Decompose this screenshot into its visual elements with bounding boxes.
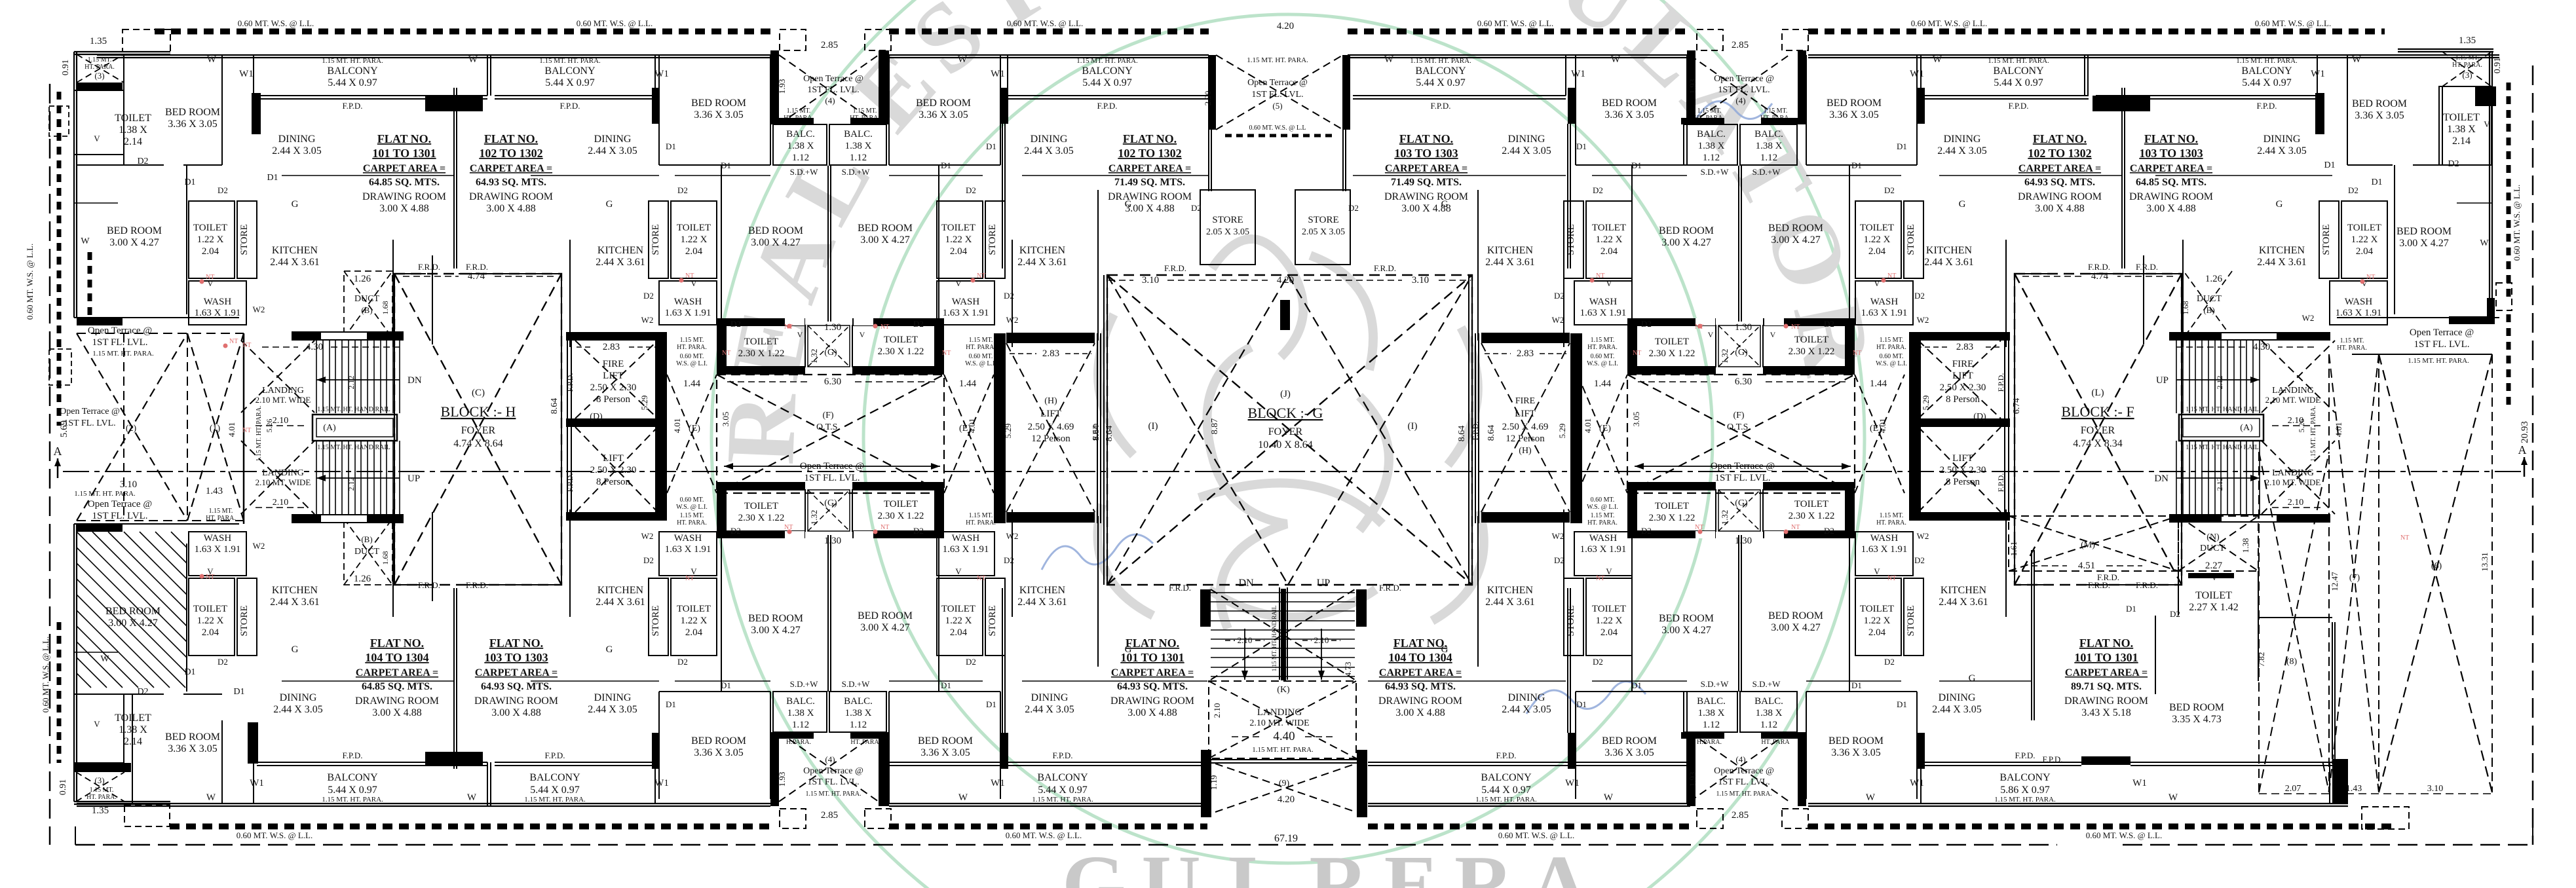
svg-text:10.40 X 8.64: 10.40 X 8.64 — [1258, 439, 1313, 451]
svg-text:DUCT: DUCT — [354, 294, 380, 304]
svg-text:D2: D2 — [966, 185, 976, 195]
svg-text:TOILET: TOILET — [2443, 112, 2480, 123]
svg-text:NT: NT — [1633, 350, 1641, 357]
svg-text:LANDING: LANDING — [262, 386, 304, 396]
svg-text:3.00 X 4.27: 3.00 X 4.27 — [860, 234, 910, 246]
svg-text:V: V — [94, 719, 100, 729]
svg-text:1.93: 1.93 — [1688, 772, 1697, 787]
svg-text:2.10 MT. WIDE: 2.10 MT. WIDE — [2265, 477, 2321, 487]
svg-text:FLAT NO.: FLAT NO. — [2144, 132, 2198, 145]
svg-text:WASH: WASH — [2345, 297, 2373, 307]
svg-text:2.44 X 3.61: 2.44 X 3.61 — [270, 257, 320, 268]
svg-text:2.44 X 3.61: 2.44 X 3.61 — [270, 597, 320, 608]
svg-text:NT: NT — [1853, 350, 1861, 357]
svg-text:2.30 X 1.22: 2.30 X 1.22 — [1789, 511, 1835, 521]
svg-text:TOILET: TOILET — [677, 604, 711, 614]
svg-text:STORE: STORE — [1906, 224, 1916, 255]
svg-text:D2: D2 — [1004, 555, 1014, 565]
svg-text:(D): (D) — [1973, 412, 1986, 422]
svg-text:0.60 MT.: 0.60 MT. — [1591, 353, 1615, 360]
svg-text:3.00 X 4.88: 3.00 X 4.88 — [2146, 203, 2196, 214]
svg-text:W.S. @ L.I.: W.S. @ L.I. — [1876, 360, 1907, 367]
svg-text:1.12: 1.12 — [850, 720, 867, 730]
svg-text:2.14: 2.14 — [124, 136, 142, 147]
svg-text:BALC.: BALC. — [786, 129, 815, 139]
svg-text:NT: NT — [942, 350, 951, 357]
svg-text:2.44 X 3.05: 2.44 X 3.05 — [1025, 704, 1074, 715]
svg-text:NT: NT — [1791, 324, 1800, 331]
svg-text:FLAT NO.: FLAT NO. — [1393, 637, 1447, 650]
svg-text:NT: NT — [1887, 575, 1896, 582]
svg-text:5.44 X 0.97: 5.44 X 0.97 — [545, 77, 595, 88]
svg-text:0.60 MT.: 0.60 MT. — [969, 353, 993, 360]
svg-text:HT. PARA.: HT. PARA. — [677, 519, 707, 527]
svg-text:2.05 X 3.05: 2.05 X 3.05 — [1206, 227, 1249, 237]
svg-text:D1: D1 — [986, 141, 996, 151]
svg-text:NT: NT — [242, 427, 251, 434]
svg-text:2.10: 2.10 — [2288, 498, 2304, 508]
svg-text:D2: D2 — [643, 291, 654, 301]
svg-text:LIFT: LIFT — [1515, 409, 1536, 419]
svg-text:2.85: 2.85 — [821, 810, 838, 821]
svg-text:2.30 X 1.22: 2.30 X 1.22 — [1649, 348, 1695, 359]
svg-text:(B): (B) — [361, 534, 372, 544]
svg-text:2.04: 2.04 — [1868, 627, 1886, 638]
svg-text:DUCT: DUCT — [2197, 294, 2222, 304]
svg-text:2.30 X 1.22: 2.30 X 1.22 — [878, 346, 924, 357]
svg-text:1.15 MT. HT. PARA.: 1.15 MT. HT. PARA. — [2236, 57, 2298, 65]
svg-text:8 Person: 8 Person — [596, 477, 631, 487]
svg-text:1.15 MT. HT. HAND RAIL: 1.15 MT. HT. HAND RAIL — [317, 444, 390, 451]
svg-text:D2: D2 — [1593, 185, 1603, 195]
svg-text:1.30: 1.30 — [824, 536, 841, 546]
svg-text:W.S. @ L.I.: W.S. @ L.I. — [1587, 360, 1618, 367]
svg-text:2.44 X 3.61: 2.44 X 3.61 — [1017, 257, 1067, 268]
svg-text:8.64: 8.64 — [1105, 426, 1114, 442]
svg-text:2.05 X 3.05: 2.05 X 3.05 — [1302, 227, 1345, 237]
svg-text:4.74: 4.74 — [2091, 271, 2109, 282]
svg-text:(G): (G) — [824, 348, 837, 358]
svg-text:W: W — [206, 792, 216, 803]
svg-text:V: V — [860, 330, 865, 339]
svg-text:S.D.+W: S.D.+W — [842, 167, 870, 177]
svg-text:GUJ RERA: GUJ RERA — [1062, 840, 1604, 888]
svg-text:0.60 MT. W.S. @ L.L.: 0.60 MT. W.S. @ L.L. — [1911, 18, 1987, 28]
svg-text:(4): (4) — [825, 754, 835, 764]
svg-text:1.12: 1.12 — [1703, 153, 1720, 163]
svg-text:H.PARA.: H.PARA. — [1697, 739, 1722, 746]
svg-text:(4): (4) — [825, 96, 835, 105]
svg-text:2.12: 2.12 — [2215, 376, 2224, 390]
svg-text:2.50 X 4.69: 2.50 X 4.69 — [1028, 422, 1074, 432]
svg-text:G: G — [1441, 199, 1449, 210]
svg-text:WASH: WASH — [952, 297, 980, 307]
svg-text:(5): (5) — [1272, 101, 1282, 111]
svg-text:D1: D1 — [267, 173, 278, 183]
svg-text:(F): (F) — [822, 411, 833, 420]
svg-text:NT: NT — [206, 574, 214, 581]
svg-text:2.44 X 3.61: 2.44 X 3.61 — [1924, 257, 1974, 268]
svg-text:W1: W1 — [654, 778, 669, 788]
svg-text:W: W — [100, 654, 109, 664]
svg-text:1.22 X: 1.22 X — [945, 616, 972, 626]
svg-text:1.63 X 1.91: 1.63 X 1.91 — [1861, 544, 1908, 555]
svg-text:WASH: WASH — [1870, 297, 1899, 307]
svg-text:1ST FL. LVL.: 1ST FL. LVL. — [1251, 90, 1303, 100]
svg-text:BED ROOM: BED ROOM — [2352, 98, 2407, 109]
svg-text:DINING: DINING — [1944, 134, 1981, 145]
svg-text:CARPET AREA =: CARPET AREA = — [1385, 163, 1468, 174]
svg-text:(J): (J) — [1280, 389, 1291, 399]
svg-text:2.10: 2.10 — [273, 416, 289, 426]
svg-text:FOYER: FOYER — [2081, 425, 2115, 436]
svg-text:1.26: 1.26 — [2205, 274, 2223, 284]
svg-text:D1: D1 — [1576, 141, 1587, 151]
svg-text:W2: W2 — [1917, 531, 1929, 541]
svg-text:(6): (6) — [2431, 561, 2442, 571]
svg-text:1.35: 1.35 — [92, 805, 109, 816]
svg-text:0.60 MT. W.S. @ L.L.: 0.60 MT. W.S. @ L.L. — [238, 18, 314, 28]
svg-text:A: A — [2518, 443, 2527, 456]
svg-text:HT. PARA.: HT. PARA. — [966, 344, 996, 351]
svg-text:DINING: DINING — [1031, 134, 1068, 145]
svg-text:3.36 X 3.05: 3.36 X 3.05 — [694, 747, 744, 758]
svg-text:2.44 X 3.05: 2.44 X 3.05 — [2257, 145, 2307, 157]
svg-text:6.74: 6.74 — [2012, 398, 2022, 415]
svg-text:D2: D2 — [2170, 609, 2180, 619]
svg-text:S.D.+W: S.D.+W — [1701, 167, 1729, 177]
svg-text:BALC.: BALC. — [1697, 696, 1726, 707]
svg-text:BED ROOM: BED ROOM — [1768, 223, 1823, 234]
svg-text:BED ROOM: BED ROOM — [107, 225, 162, 236]
svg-text:TOILET: TOILET — [744, 337, 778, 347]
svg-text:3.00 X 4.88: 3.00 X 4.88 — [379, 203, 429, 214]
svg-text:D2: D2 — [1191, 203, 1202, 213]
svg-text:64.93 SQ. MTS.: 64.93 SQ. MTS. — [2024, 177, 2095, 188]
svg-text:2.27 X 1.42: 2.27 X 1.42 — [2189, 602, 2239, 613]
svg-text:1.35: 1.35 — [2459, 35, 2476, 46]
svg-text:W2: W2 — [1917, 315, 1929, 325]
svg-text:BALC.: BALC. — [844, 129, 873, 139]
svg-text:D2: D2 — [1004, 291, 1014, 301]
svg-text:DN: DN — [2154, 473, 2169, 484]
svg-text:KITCHEN: KITCHEN — [1487, 245, 1534, 256]
svg-text:W1: W1 — [1565, 778, 1580, 788]
svg-text:BLOCK :- H: BLOCK :- H — [441, 403, 516, 420]
svg-text:D2: D2 — [643, 555, 654, 565]
svg-text:2.10 MT. WIDE: 2.10 MT. WIDE — [256, 477, 311, 487]
svg-text:KITCHEN: KITCHEN — [597, 585, 644, 596]
svg-text:DUCT: DUCT — [354, 547, 380, 557]
svg-text:2.44 X 3.61: 2.44 X 3.61 — [1017, 597, 1067, 608]
svg-text:W: W — [1933, 54, 1942, 65]
svg-text:1.12: 1.12 — [1703, 720, 1720, 730]
svg-text:8 Person: 8 Person — [596, 394, 631, 405]
svg-text:0.60 MT. W.S. @ L.L.: 0.60 MT. W.S. @ L.L. — [25, 244, 35, 320]
svg-text:KITCHEN: KITCHEN — [272, 245, 318, 256]
svg-text:2.83: 2.83 — [1956, 342, 1973, 352]
svg-text:3.05: 3.05 — [1631, 412, 1641, 427]
svg-text:1.22 X: 1.22 X — [197, 234, 224, 245]
svg-text:F.P.D.: F.P.D. — [2008, 101, 2028, 111]
svg-text:DN: DN — [407, 375, 422, 386]
svg-text:12 Person: 12 Person — [1031, 434, 1070, 444]
svg-text:V: V — [797, 330, 803, 339]
svg-text:3.00 X 4.27: 3.00 X 4.27 — [751, 237, 801, 248]
svg-text:D2: D2 — [913, 319, 924, 329]
svg-text:Open Terrace @: Open Terrace @ — [2410, 327, 2474, 338]
svg-text:1.15 MT.: 1.15 MT. — [680, 337, 704, 344]
svg-text:20.93: 20.93 — [2520, 421, 2530, 443]
svg-text:W: W — [1611, 54, 1621, 65]
svg-text:W: W — [81, 236, 90, 246]
svg-text:D2: D2 — [1554, 291, 1564, 301]
svg-text:D2: D2 — [966, 657, 976, 667]
svg-text:V: V — [1874, 566, 1880, 576]
svg-text:1.12: 1.12 — [1760, 720, 1777, 730]
svg-text:DINING: DINING — [594, 692, 632, 703]
svg-text:1.15 MT.: 1.15 MT. — [88, 56, 112, 64]
svg-text:W: W — [1384, 54, 1394, 65]
svg-text:1.15 MT. HT. PARA.: 1.15 MT. HT. PARA. — [539, 57, 601, 65]
svg-text:1ST FL. LVL.: 1ST FL. LVL. — [2414, 339, 2469, 350]
svg-text:2.04: 2.04 — [950, 627, 968, 638]
svg-text:5.29: 5.29 — [1003, 424, 1013, 439]
svg-text:67.19: 67.19 — [1274, 833, 1298, 844]
svg-text:D1: D1 — [1576, 699, 1587, 709]
svg-text:1.15 MT. HT. PARA.: 1.15 MT. HT. PARA. — [322, 57, 383, 65]
svg-text:BALCONY: BALCONY — [1481, 772, 1532, 783]
svg-text:3.00 X 4.88: 3.00 X 4.88 — [1127, 707, 1177, 718]
svg-text:2.10 MT. WIDE: 2.10 MT. WIDE — [2265, 395, 2321, 405]
svg-text:1.15 MT. HT. HAND RAIL: 1.15 MT. HT. HAND RAIL — [2186, 444, 2259, 451]
svg-text:2.12: 2.12 — [2215, 477, 2224, 491]
svg-text:KITCHEN: KITCHEN — [1487, 585, 1534, 596]
svg-text:BALCONY: BALCONY — [1037, 772, 1088, 783]
svg-text:FIRE: FIRE — [1952, 359, 1974, 369]
svg-text:D1: D1 — [2371, 177, 2382, 187]
svg-text:1.15 MT.: 1.15 MT. — [853, 107, 877, 115]
svg-text:0.60 MT.: 0.60 MT. — [680, 496, 704, 504]
svg-text:102 TO 1302: 102 TO 1302 — [2028, 147, 2091, 160]
svg-text:4.74 X 8.34: 4.74 X 8.34 — [2073, 438, 2123, 449]
svg-text:(7): (7) — [2349, 573, 2360, 583]
svg-text:HT. PARA.: HT. PARA. — [86, 794, 117, 801]
svg-text:(H): (H) — [1519, 446, 1532, 456]
svg-text:TOILET: TOILET — [193, 223, 227, 233]
svg-text:2.44 X 3.61: 2.44 X 3.61 — [1939, 597, 1988, 608]
svg-text:1ST FL. LVL.: 1ST FL. LVL. — [92, 511, 147, 521]
svg-text:12 Person: 12 Person — [1506, 434, 1545, 444]
svg-text:WASH: WASH — [204, 533, 232, 544]
svg-text:Open Terrace @: Open Terrace @ — [803, 766, 863, 776]
svg-text:1ST FL. LVL.: 1ST FL. LVL. — [92, 337, 147, 348]
svg-text:W: W — [2352, 54, 2362, 65]
svg-text:5.44 X 0.97: 5.44 X 0.97 — [1038, 785, 1088, 796]
svg-text:W2: W2 — [1552, 531, 1564, 541]
svg-text:3.05: 3.05 — [721, 412, 730, 427]
svg-text:BALCONY: BALCONY — [1993, 65, 2044, 77]
svg-text:1.15 MT. HT. PARA.: 1.15 MT. HT. PARA. — [1076, 57, 1138, 65]
svg-text:S.D.+W: S.D.+W — [842, 679, 870, 689]
svg-text:2.50 X 2.30: 2.50 X 2.30 — [590, 382, 637, 393]
svg-text:D2: D2 — [677, 657, 688, 667]
svg-text:TOILET: TOILET — [1860, 223, 1894, 233]
svg-text:1.44: 1.44 — [683, 379, 701, 389]
svg-text:W: W — [958, 54, 968, 65]
svg-text:(1): (1) — [210, 424, 221, 434]
svg-text:HT. PARA.: HT. PARA. — [1587, 344, 1618, 351]
svg-text:1.15 MT.: 1.15 MT. — [2340, 337, 2364, 344]
svg-text:1.22 X: 1.22 X — [681, 616, 708, 626]
svg-text:1.61: 1.61 — [2009, 542, 2018, 557]
svg-text:NT: NT — [242, 342, 251, 349]
svg-text:3.36 X 3.05: 3.36 X 3.05 — [1829, 109, 1879, 120]
svg-text:BLOCK :- G: BLOCK :- G — [1248, 405, 1323, 421]
svg-text:BALCONY: BALCONY — [544, 65, 596, 77]
svg-text:D2: D2 — [1824, 319, 1834, 329]
svg-text:(9): (9) — [1279, 779, 1290, 788]
svg-text:1.15 MT. HT. HAND RAIL: 1.15 MT. HT. HAND RAIL — [317, 406, 390, 413]
svg-text:5.26: 5.26 — [2297, 419, 2306, 433]
svg-text:1.15 MT. HT. HAND RAIL: 1.15 MT. HT. HAND RAIL — [2186, 406, 2259, 413]
svg-text:TOILET: TOILET — [941, 223, 975, 233]
svg-text:2.44 X 3.05: 2.44 X 3.05 — [588, 145, 637, 157]
svg-text:2.44 X 3.05: 2.44 X 3.05 — [588, 704, 637, 715]
svg-text:102 TO 1302: 102 TO 1302 — [1118, 147, 1181, 160]
svg-text:CARPET AREA =: CARPET AREA = — [1111, 667, 1194, 678]
svg-text:BED ROOM: BED ROOM — [1602, 98, 1657, 109]
svg-text:WASH: WASH — [204, 297, 232, 307]
svg-text:BED ROOM: BED ROOM — [916, 98, 971, 109]
svg-text:1.15 MT. HT. PARA.: 1.15 MT. HT. PARA. — [1994, 796, 2056, 804]
svg-text:(G): (G) — [1735, 498, 1748, 508]
svg-text:0.60 MT. W.S. @ L.L.: 0.60 MT. W.S. @ L.L. — [41, 637, 50, 712]
svg-text:D2: D2 — [1914, 291, 1925, 301]
svg-text:NT: NT — [2400, 534, 2409, 542]
svg-text:DINING: DINING — [1508, 134, 1545, 145]
svg-text:1.26: 1.26 — [354, 274, 371, 284]
svg-text:1.15 MT. HT. PARA.: 1.15 MT. HT. PARA. — [524, 796, 586, 804]
svg-text:FOYER: FOYER — [461, 425, 496, 436]
svg-text:(F): (F) — [1733, 411, 1744, 420]
svg-text:BALCONY: BALCONY — [529, 772, 580, 783]
svg-text:5.44 X 0.97: 5.44 X 0.97 — [328, 785, 377, 796]
svg-text:BLOCK :- F: BLOCK :- F — [2061, 403, 2134, 420]
svg-text:NT: NT — [229, 338, 238, 345]
svg-text:104 TO 1304: 104 TO 1304 — [365, 651, 428, 664]
svg-text:STORE: STORE — [1212, 215, 1243, 225]
svg-text:F.R.D.: F.R.D. — [2097, 572, 2119, 582]
svg-text:F.P.D.: F.P.D. — [565, 473, 575, 492]
svg-text:STORE: STORE — [239, 605, 250, 636]
svg-text:D1: D1 — [721, 680, 731, 690]
svg-text:2.04: 2.04 — [202, 627, 219, 638]
svg-text:3.00 X 4.27: 3.00 X 4.27 — [109, 237, 159, 248]
svg-text:STORE: STORE — [1308, 215, 1338, 225]
svg-text:UP: UP — [2156, 375, 2169, 386]
svg-text:D2: D2 — [2448, 159, 2459, 169]
svg-text:BED ROOM: BED ROOM — [748, 225, 803, 236]
svg-text:W1: W1 — [991, 69, 1005, 79]
svg-text:2.44 X 3.61: 2.44 X 3.61 — [596, 597, 645, 608]
svg-text:D1: D1 — [1851, 160, 1862, 170]
svg-text:3.00 X 4.27: 3.00 X 4.27 — [860, 622, 910, 633]
svg-text:W1: W1 — [239, 69, 254, 79]
svg-text:D2: D2 — [913, 526, 924, 536]
svg-text:F.R.D.: F.R.D. — [2136, 262, 2158, 272]
svg-text:1.63 X 1.91: 1.63 X 1.91 — [665, 308, 711, 318]
svg-text:1.15 MT. HT. PARA.: 1.15 MT. HT. PARA. — [2408, 357, 2469, 365]
svg-text:O.T.S.: O.T.S. — [1727, 422, 1751, 432]
svg-text:4.40: 4.40 — [1273, 730, 1295, 743]
svg-text:71.49 SQ. MTS.: 71.49 SQ. MTS. — [1391, 177, 1462, 188]
svg-text:(A): (A) — [2240, 423, 2253, 433]
svg-text:UP: UP — [407, 473, 420, 484]
svg-text:2.44 X 3.61: 2.44 X 3.61 — [1485, 597, 1535, 608]
svg-text:W1: W1 — [2132, 778, 2147, 788]
svg-text:NT: NT — [881, 324, 889, 331]
svg-text:W: W — [1604, 792, 1614, 803]
svg-text:1.15 MT. HT. PARA.: 1.15 MT. HT. PARA. — [1032, 796, 1093, 804]
svg-text:F.P.D.: F.P.D. — [1996, 373, 2005, 392]
svg-text:1.22 X: 1.22 X — [1864, 616, 1891, 626]
svg-text:1.15 MT. HT. PARA.: 1.15 MT. HT. PARA. — [2310, 405, 2317, 461]
svg-text:NT: NT — [1791, 524, 1800, 531]
svg-text:5.44 X 0.97: 5.44 X 0.97 — [2242, 77, 2292, 88]
svg-text:2.30 X 1.22: 2.30 X 1.22 — [878, 511, 924, 521]
svg-text:KITCHEN: KITCHEN — [1019, 245, 1066, 256]
svg-text:(M): (M) — [2081, 540, 2095, 550]
svg-text:1.15 MT. HT. PARA.: 1.15 MT. HT. PARA. — [805, 790, 861, 798]
svg-text:BED ROOM: BED ROOM — [691, 735, 746, 747]
svg-text:(C): (C) — [472, 388, 485, 398]
svg-text:HT. PARA.: HT. PARA. — [1587, 519, 1618, 527]
svg-text:CARPET AREA =: CARPET AREA = — [1108, 163, 1191, 174]
svg-text:O.T.S.: O.T.S. — [816, 422, 840, 432]
svg-text:F.R.D.: F.R.D. — [1164, 263, 1186, 273]
svg-text:WASH: WASH — [674, 533, 702, 544]
svg-text:2.30 X 1.22: 2.30 X 1.22 — [738, 513, 785, 523]
svg-text:0.60 MT. W.S. @ L.L.: 0.60 MT. W.S. @ L.L. — [1498, 830, 1574, 840]
svg-text:3.00 X 4.27: 3.00 X 4.27 — [751, 625, 801, 636]
svg-text:5.44 X 0.97: 5.44 X 0.97 — [328, 77, 377, 88]
svg-text:DINING: DINING — [1508, 692, 1545, 703]
svg-text:G: G — [606, 199, 613, 210]
svg-text:3.36 X 3.05: 3.36 X 3.05 — [1831, 747, 1881, 758]
svg-text:1.63 X 1.91: 1.63 X 1.91 — [1861, 308, 1908, 318]
svg-text:64.93 SQ. MTS.: 64.93 SQ. MTS. — [476, 177, 546, 188]
svg-text:1.43: 1.43 — [206, 486, 223, 496]
svg-text:4.74 X 8.64: 4.74 X 8.64 — [453, 438, 503, 449]
svg-text:W: W — [958, 792, 968, 803]
svg-text:BED ROOM: BED ROOM — [1768, 610, 1823, 621]
svg-text:HT. PARA.: HT. PARA. — [2337, 344, 2367, 352]
svg-text:3.10: 3.10 — [1142, 275, 1159, 286]
svg-text:0.60 MT. W.S. @ L.L.: 0.60 MT. W.S. @ L.L. — [1006, 830, 1082, 840]
svg-text:TOILET: TOILET — [1860, 604, 1894, 614]
svg-text:HT. PARA.: HT. PARA. — [1876, 519, 1906, 527]
svg-text:G: G — [292, 199, 299, 210]
svg-text:2.07: 2.07 — [2285, 784, 2301, 794]
svg-text:W2: W2 — [1552, 315, 1564, 325]
svg-text:BED ROOM: BED ROOM — [858, 610, 913, 621]
svg-text:1.63 X 1.91: 1.63 X 1.91 — [2336, 308, 2382, 318]
svg-text:V: V — [691, 278, 697, 288]
svg-text:1.15 MT.: 1.15 MT. — [787, 107, 811, 115]
svg-text:1.38 X: 1.38 X — [119, 124, 147, 136]
svg-text:0.60 MT. W.S. @ L.L.: 0.60 MT. W.S. @ L.L. — [1007, 18, 1083, 28]
